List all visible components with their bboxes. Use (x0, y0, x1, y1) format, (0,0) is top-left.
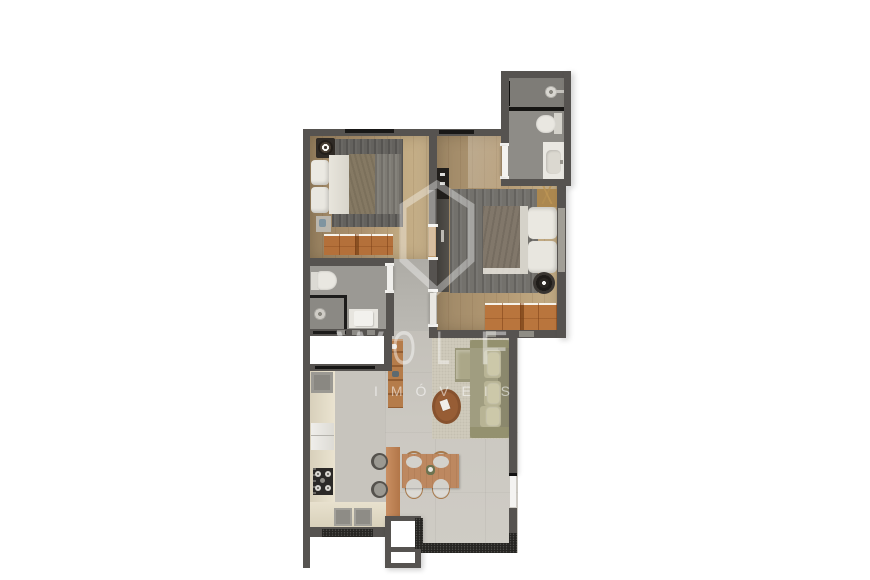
svg-text:F: F (479, 321, 508, 374)
svg-text:L: L (436, 321, 450, 374)
svg-text:W: W (336, 321, 385, 374)
svg-text:O: O (392, 321, 416, 374)
svg-text:IMÓVEIS: IMÓVEIS (374, 383, 510, 399)
